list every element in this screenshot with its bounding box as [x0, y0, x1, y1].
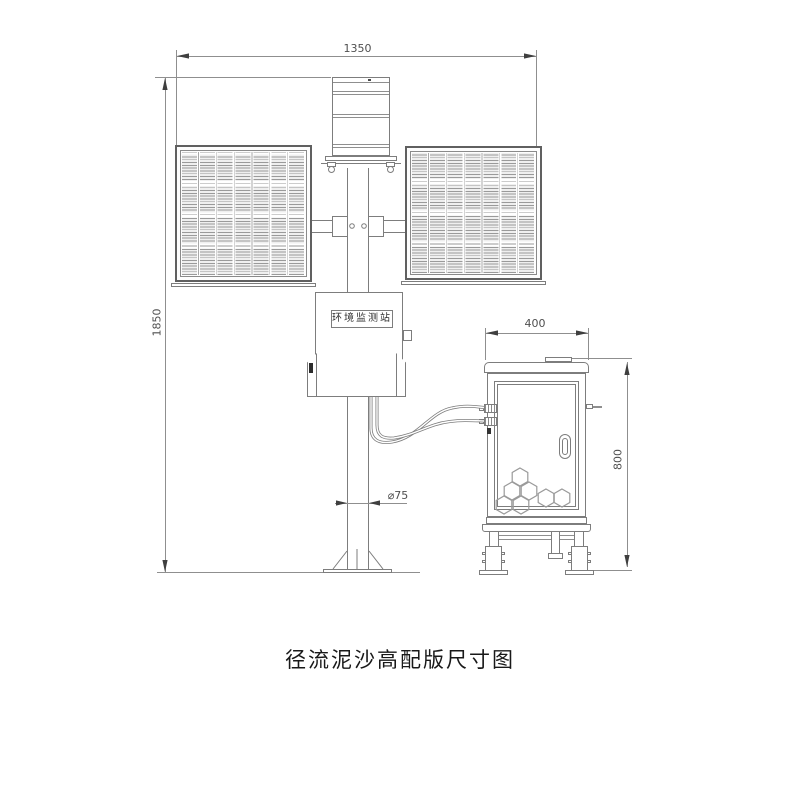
solar-panel-left	[175, 145, 312, 282]
rain-gauge-cylinder	[332, 77, 390, 156]
drain-pipe	[551, 531, 560, 554]
drain-pipe-collar	[548, 553, 563, 559]
foot-bolt-right-c	[587, 552, 591, 555]
crossarm-clamp-left	[332, 216, 348, 237]
cabinet-right-fitting-stem	[593, 406, 602, 408]
cylinder-mount-bolt-left	[327, 162, 336, 167]
cable-connector-top	[484, 404, 497, 413]
dim-cabinet-height-label: 800	[612, 440, 625, 480]
foot-bolt-left-a	[482, 552, 486, 555]
controller-box-bracket-right	[396, 353, 406, 397]
controller-box-knob	[403, 330, 412, 341]
dim-cabinet-width-ext-left	[485, 328, 486, 360]
cylinder-band-3	[333, 94, 389, 95]
cabinet-right-fitting	[586, 404, 593, 409]
solar-panel-right-inner-frame	[410, 151, 537, 275]
foot-bolt-right-b	[568, 560, 572, 563]
connector-tip-top	[479, 406, 484, 411]
leg-crossbar-1	[499, 535, 574, 536]
connection-cables	[371, 397, 484, 442]
foot-bolt-left-c	[501, 552, 505, 555]
connector-lock-mark	[487, 428, 491, 434]
controller-box-bracket-left-slot	[309, 363, 313, 373]
dim-cabinet-width-ext-right	[588, 328, 589, 360]
cabinet-top-cap	[484, 362, 589, 373]
cylinder-band-7	[333, 147, 389, 148]
dim-cabinet-height-ext-bottom	[592, 570, 632, 571]
dim-pole-diameter-label: ⌀75	[378, 489, 418, 502]
cylinder-band-5	[333, 117, 389, 118]
dim-overall-width-label: 1350	[330, 42, 385, 55]
leg-crossbar-2	[499, 539, 574, 540]
cylinder-band-6	[333, 144, 389, 145]
connector-tip-bottom	[479, 419, 484, 424]
solar-panel-right-cells	[412, 153, 535, 273]
cylinder-mount-bolt-right	[386, 162, 395, 167]
cylinder-base-plate	[325, 156, 397, 161]
dim-cabinet-height-line	[627, 362, 628, 567]
crossarm-clamp-right	[368, 216, 384, 237]
solar-panel-right	[405, 146, 542, 280]
cabinet-foot-block-right	[571, 546, 588, 571]
foot-bolt-right-d	[587, 560, 591, 563]
dim-overall-width-line	[176, 56, 537, 57]
dim-cabinet-width-label: 400	[510, 317, 560, 330]
dim-overall-width-ext-right	[536, 50, 537, 146]
door-handle-slot	[562, 438, 568, 455]
foot-bolt-left-b	[482, 560, 486, 563]
dim-cabinet-height-ext-top	[570, 358, 632, 359]
cabinet-foot-block-left	[485, 546, 502, 571]
cabinet-foot-plate-left	[479, 570, 508, 575]
station-nameplate: 环境监测站	[331, 310, 393, 328]
dim-pole-diameter-line	[335, 503, 407, 504]
cylinder-band-4	[333, 114, 389, 115]
cabinet-foot-plate-right	[565, 570, 594, 575]
cylinder-band-2	[333, 91, 389, 92]
dim-overall-height-line	[165, 77, 166, 572]
controller-box: 环境监测站	[315, 292, 403, 397]
dim-cabinet-width-line	[485, 333, 588, 334]
solar-panel-left-cells	[182, 152, 305, 275]
controller-box-bracket-left	[307, 353, 317, 397]
cable-connector-bottom	[484, 417, 497, 426]
dim-overall-width-ext-left	[176, 50, 177, 146]
cylinder-band-1	[333, 82, 389, 83]
cylinder-top-vent	[368, 79, 371, 81]
foot-bolt-right-a	[568, 552, 572, 555]
drawing-caption: 径流泥沙高配版尺寸图	[250, 644, 550, 674]
pole-base-plate	[323, 569, 392, 573]
solar-panel-left-inner-frame	[180, 150, 307, 277]
drawing-overlay	[0, 0, 800, 800]
foot-bolt-left-d	[501, 560, 505, 563]
cabinet-base-band-1	[486, 517, 587, 524]
dim-overall-height-label: 1850	[151, 303, 164, 343]
dimension-drawing: 环境监测站	[0, 0, 800, 800]
station-nameplate-text: 环境监测站	[332, 311, 392, 327]
solar-panel-right-bottom-rail	[401, 281, 546, 285]
dim-overall-height-ext-top	[155, 77, 331, 78]
solar-panel-left-bottom-rail	[171, 283, 316, 287]
